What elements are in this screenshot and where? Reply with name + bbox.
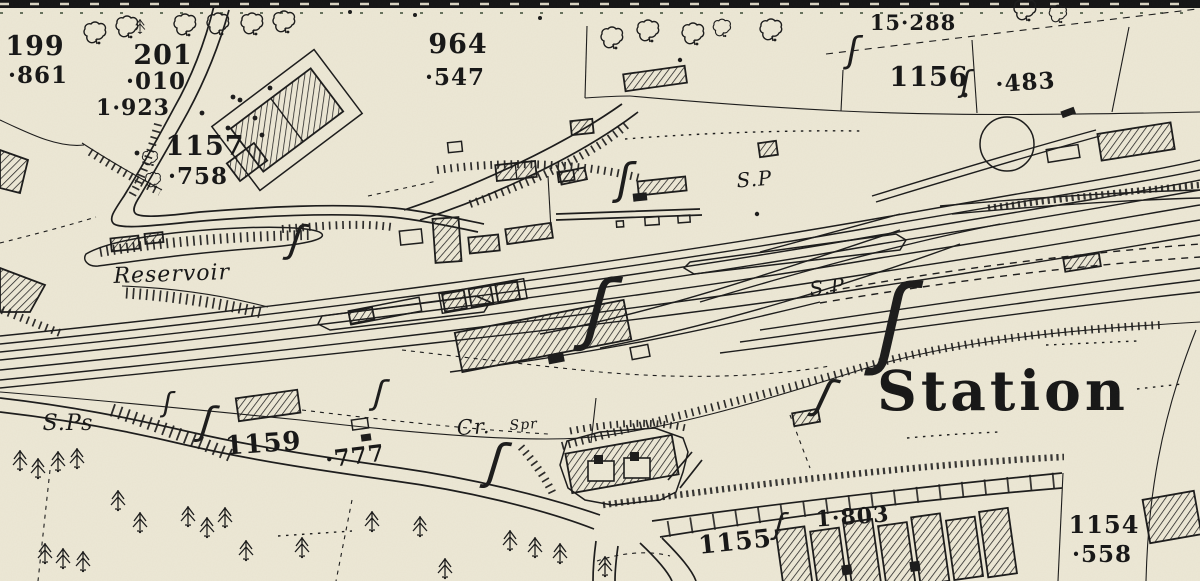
signal-post-label-lower: S.P <box>808 273 846 301</box>
parcel-number-1156: 1156 <box>889 62 968 93</box>
building-solid <box>909 561 920 572</box>
parcel-number-199: 199 <box>5 31 64 62</box>
plot-area-1803: 1·803 <box>815 501 891 532</box>
building-hatched <box>570 119 593 135</box>
building-hatched <box>110 236 139 252</box>
building-hatched <box>1143 491 1200 543</box>
plot-area-1923: 1·923 <box>96 95 170 121</box>
parcel-area-201: ·010 <box>126 68 186 95</box>
spring-label: Spr <box>509 416 539 434</box>
building-hatched <box>442 290 467 312</box>
signal-post-building <box>758 141 778 157</box>
parcel-number-1159: 1159 <box>224 426 302 461</box>
building-hatched <box>432 217 461 263</box>
building-solid <box>594 455 603 464</box>
building-solid <box>630 452 639 461</box>
parcel-number-964: 964 <box>428 29 487 60</box>
parcel-area-1156: ·483 <box>995 67 1057 98</box>
parcel-area-964: ·547 <box>425 64 485 91</box>
parcel-number-1157: 1157 <box>165 131 244 162</box>
signal-post-label-upper: S.P <box>736 166 774 193</box>
parcel-number-1154: 1154 <box>1069 510 1140 539</box>
crane-label: Cr. <box>456 414 491 440</box>
plot-area-15288: 15·288 <box>870 10 956 35</box>
building-hatched <box>469 286 494 308</box>
building-hatched <box>468 234 500 253</box>
station-label: Station <box>877 358 1129 423</box>
map-canvas: ʃ ʃ ʃ ʃ ʃ ʃ ʃ ʃ ʃ ʃ ʃ ʃ 199 ·861 201 ·01… <box>0 0 1200 581</box>
building-hatched <box>495 281 520 303</box>
os-map-sheet: ʃ ʃ ʃ ʃ ʃ ʃ ʃ ʃ ʃ ʃ ʃ ʃ 199 ·861 201 ·01… <box>0 0 1200 581</box>
parcel-area-199: ·861 <box>8 62 68 89</box>
parcel-area-1157: ·758 <box>168 163 228 190</box>
building-hatched <box>145 232 164 244</box>
parcel-number-201: 201 <box>133 40 192 71</box>
reservoir-label: Reservoir <box>112 260 231 289</box>
parcel-area-1154: ·558 <box>1072 541 1132 568</box>
building-solid <box>841 564 852 575</box>
building-solid <box>633 192 648 201</box>
signal-posts-label: S.Ps <box>43 411 94 436</box>
